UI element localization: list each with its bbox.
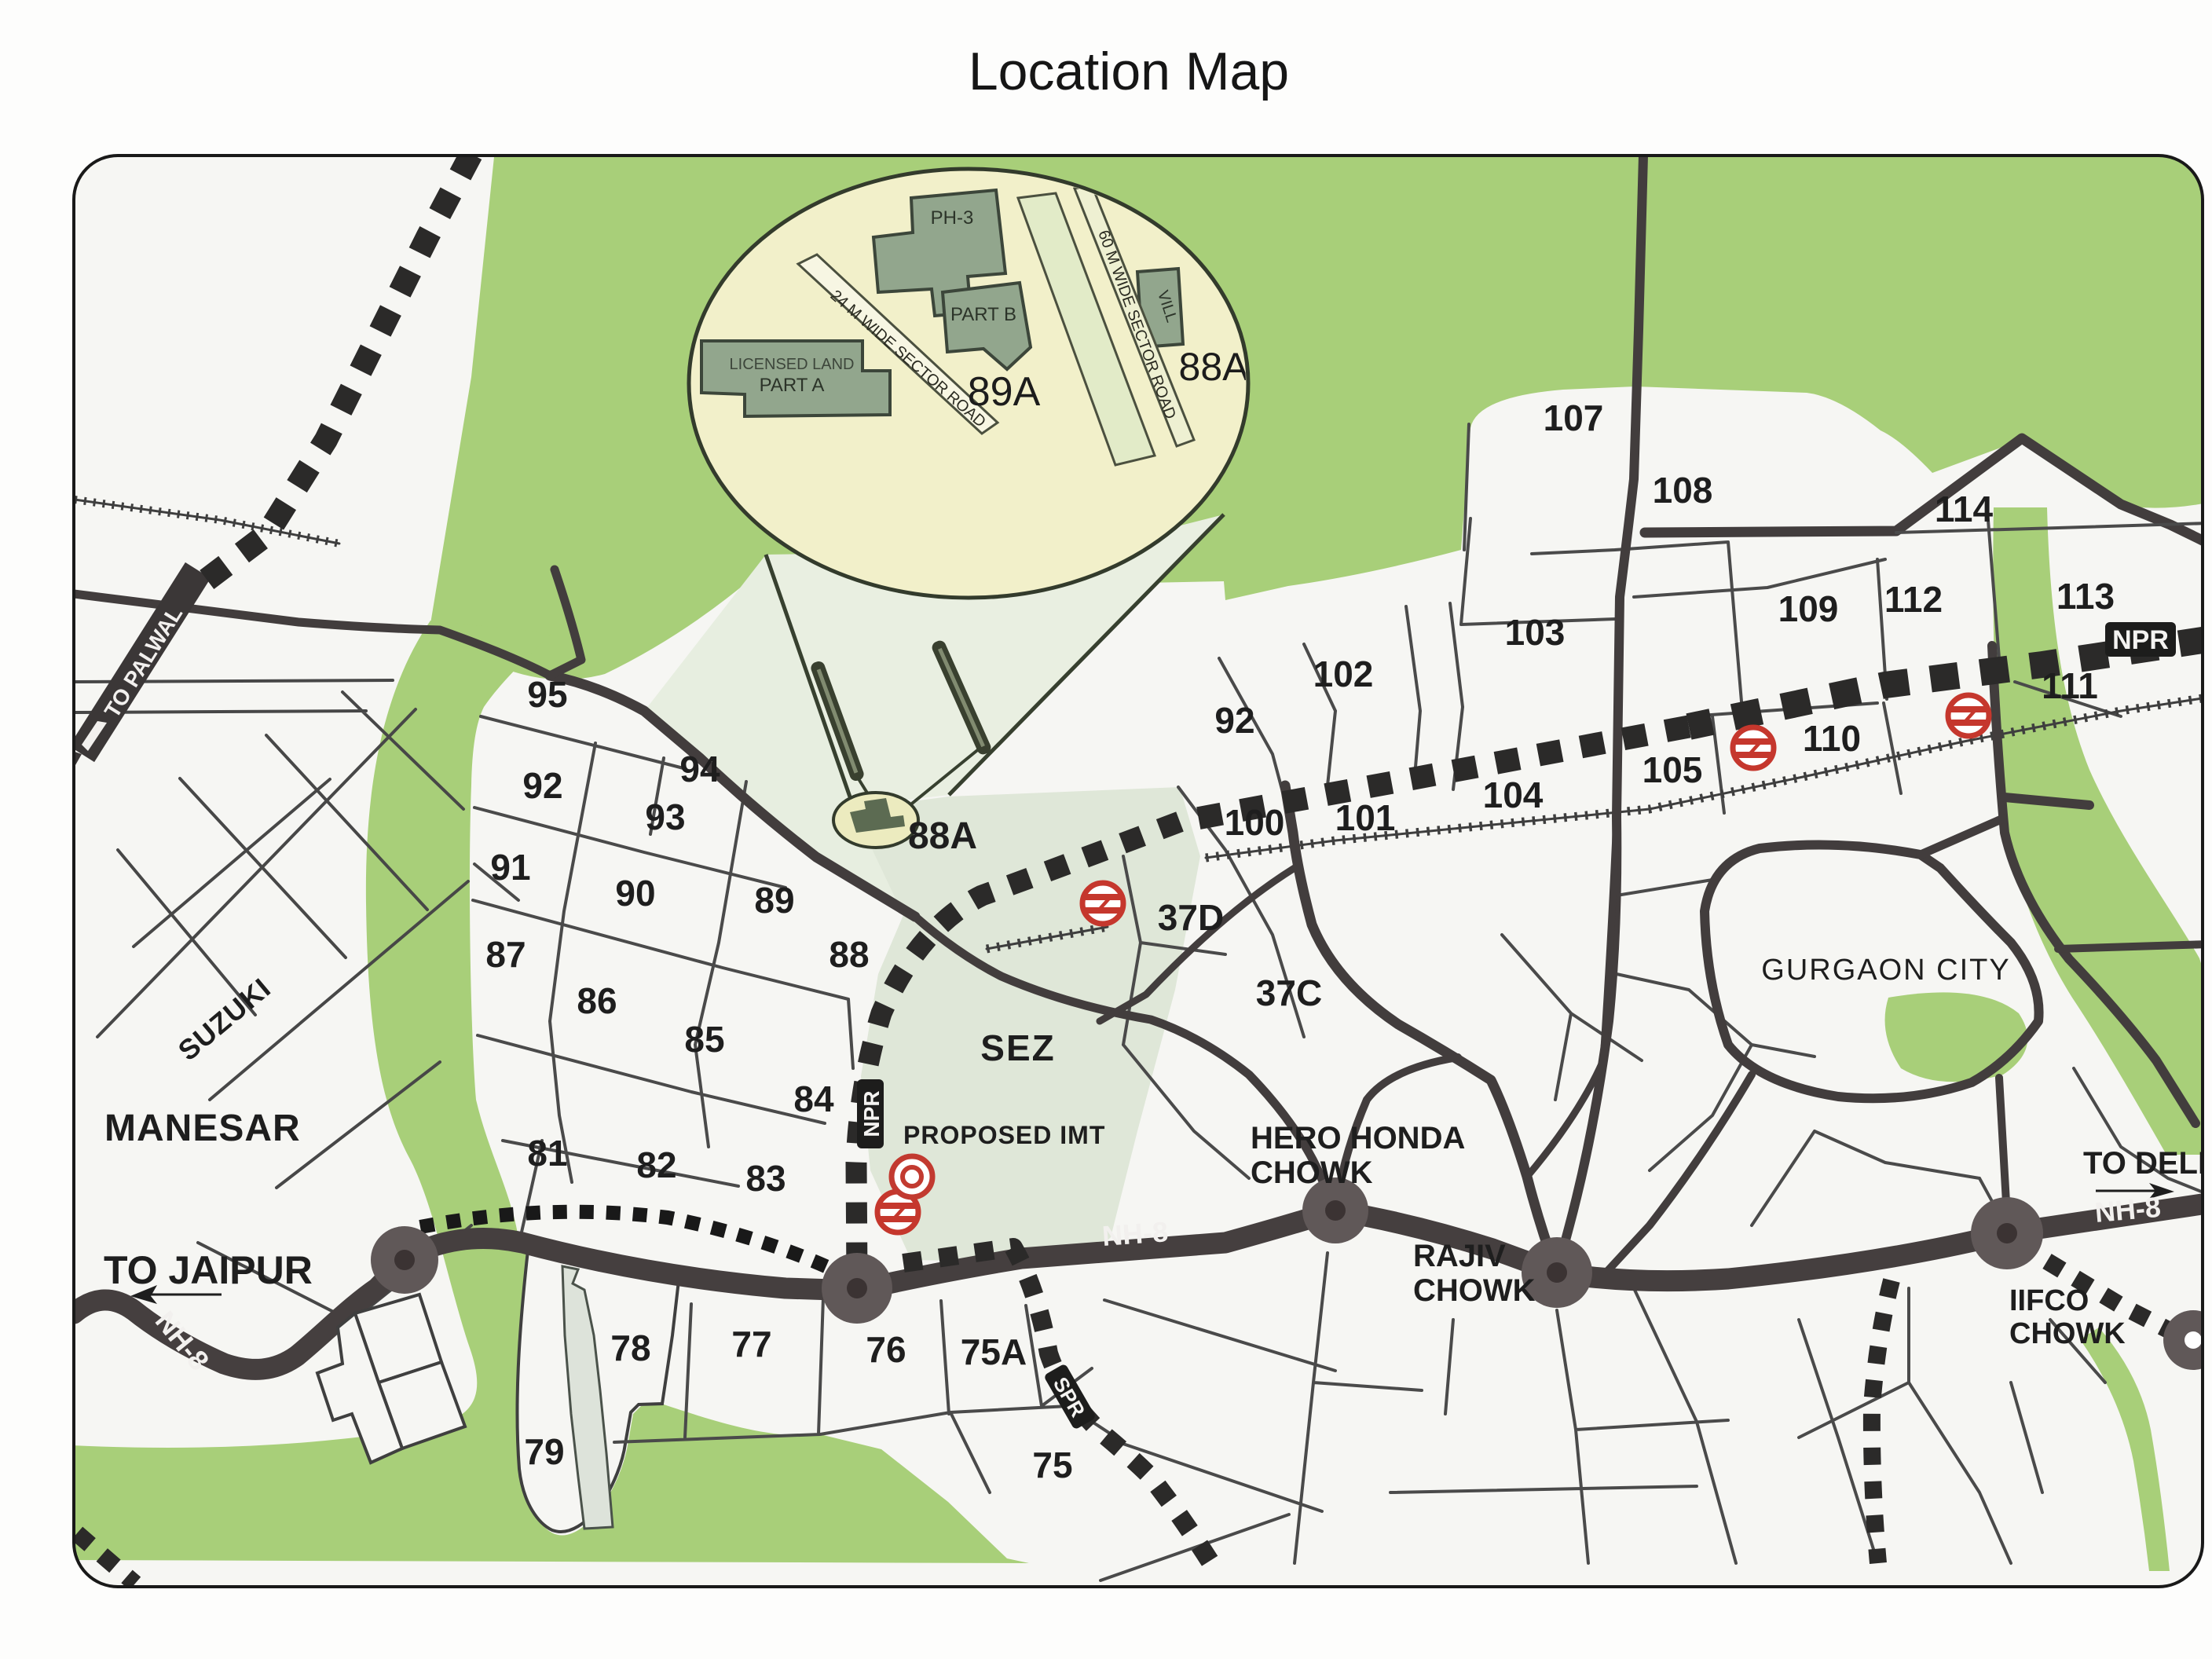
svg-text:91: 91 [490,847,530,888]
svg-text:CHOWK: CHOWK [1413,1273,1536,1308]
svg-text:108: 108 [1653,470,1713,511]
svg-text:88A: 88A [1179,345,1250,389]
svg-text:75A: 75A [961,1331,1027,1372]
svg-text:TO JAIPUR: TO JAIPUR [104,1248,313,1292]
svg-text:88A: 88A [908,815,977,857]
svg-text:CHOWK: CHOWK [2009,1317,2126,1350]
svg-text:85: 85 [684,1019,724,1060]
svg-text:PROPOSED IMT: PROPOSED IMT [903,1121,1105,1149]
svg-text:88: 88 [829,934,869,975]
svg-text:MANESAR: MANESAR [104,1108,301,1149]
svg-text:107: 107 [1544,397,1604,438]
svg-text:HERO HONDA: HERO HONDA [1251,1121,1465,1155]
svg-text:LICENSED LAND: LICENSED LAND [730,356,855,373]
svg-text:95: 95 [527,674,567,715]
svg-text:111: 111 [2042,665,2098,706]
svg-text:81: 81 [527,1133,567,1174]
svg-text:112: 112 [1884,579,1943,620]
svg-text:104: 104 [1483,775,1544,815]
svg-text:100: 100 [1225,802,1285,843]
svg-text:102: 102 [1313,654,1374,694]
svg-text:TO DELHI: TO DELHI [2083,1146,2212,1181]
svg-text:105: 105 [1643,749,1703,790]
svg-text:109: 109 [1778,588,1839,629]
svg-text:78: 78 [610,1328,650,1368]
svg-text:103: 103 [1505,612,1566,653]
svg-text:RAJIV: RAJIV [1413,1239,1506,1273]
svg-text:114: 114 [1935,489,1994,529]
svg-text:GURGAON CITY: GURGAON CITY [1761,954,2010,987]
svg-text:NH-8: NH-8 [1101,1215,1170,1252]
svg-text:Location Map: Location Map [969,42,1289,101]
svg-text:PART A: PART A [760,375,825,396]
svg-text:90: 90 [615,873,655,914]
svg-text:110: 110 [1803,718,1861,759]
svg-text:89: 89 [754,880,794,921]
svg-text:94: 94 [679,749,720,789]
svg-text:75: 75 [1032,1445,1072,1485]
svg-text:PART B: PART B [950,304,1016,325]
svg-text:83: 83 [745,1158,786,1199]
svg-text:IIFCO: IIFCO [2009,1284,2089,1317]
svg-text:92: 92 [522,765,562,806]
svg-text:CHOWK: CHOWK [1251,1155,1373,1190]
svg-text:113: 113 [2056,576,2115,617]
svg-text:PH-3: PH-3 [931,207,974,229]
svg-text:89A: 89A [968,369,1041,415]
svg-text:86: 86 [577,980,617,1021]
svg-text:87: 87 [485,934,526,975]
svg-text:82: 82 [636,1144,676,1185]
svg-text:NPR: NPR [2112,625,2169,655]
svg-text:SEZ: SEZ [980,1027,1055,1068]
svg-text:NH-8: NH-8 [2093,1191,2162,1229]
svg-text:76: 76 [866,1329,906,1370]
svg-text:93: 93 [645,797,685,837]
svg-text:77: 77 [731,1324,771,1364]
svg-text:37C: 37C [1256,972,1322,1013]
svg-text:101: 101 [1335,797,1396,838]
svg-text:79: 79 [524,1431,564,1472]
svg-text:84: 84 [793,1079,834,1119]
svg-text:NPR: NPR [859,1090,884,1137]
svg-text:92: 92 [1214,700,1254,741]
svg-text:37D: 37D [1158,897,1224,938]
